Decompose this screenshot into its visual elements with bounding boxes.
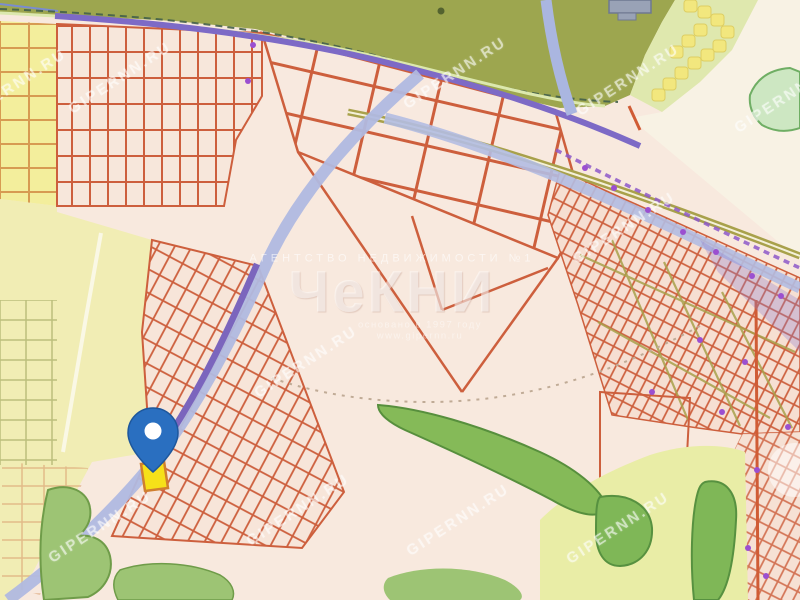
building-footprint — [609, 0, 651, 13]
street-line — [756, 300, 758, 600]
map-canvas[interactable] — [0, 0, 800, 600]
map-viewport[interactable]: GIPERNN.RU GIPERNN.RU GIPERNN.RU GIPERNN… — [0, 0, 800, 600]
